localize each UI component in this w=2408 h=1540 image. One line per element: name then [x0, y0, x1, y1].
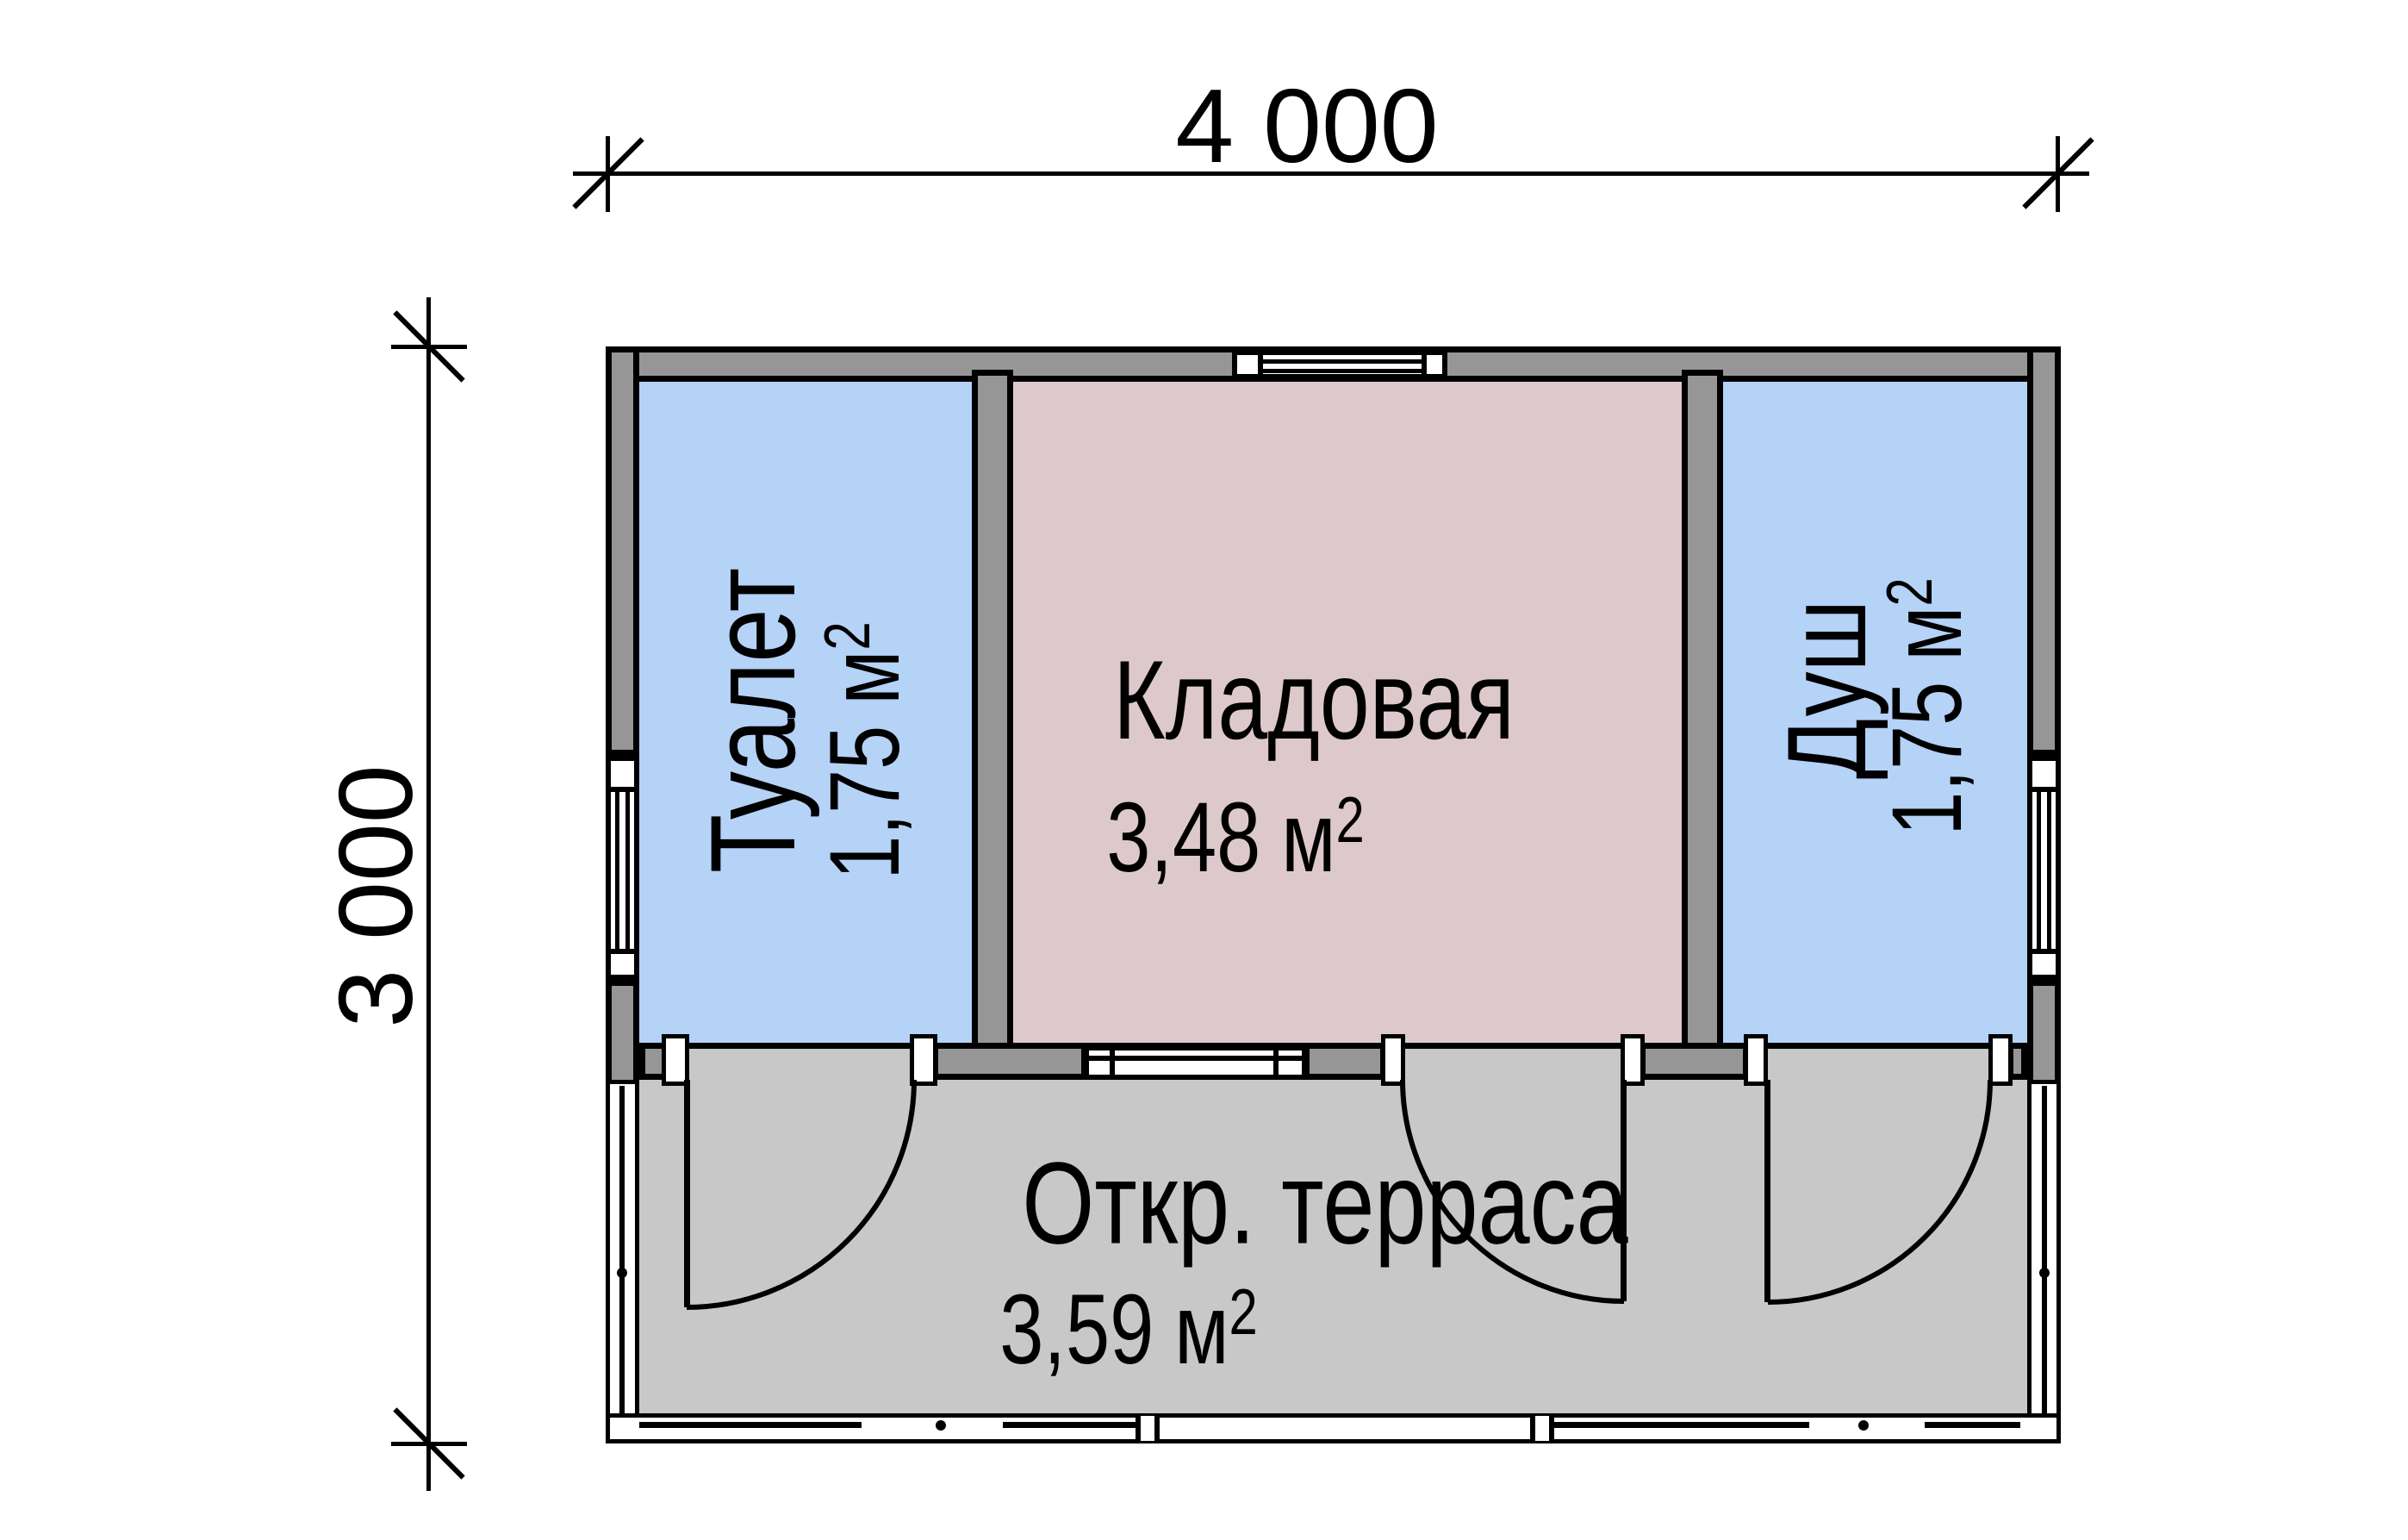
area-label-shower: 1,75м2: [1870, 577, 1984, 835]
area-storage-value: 3,48: [1106, 782, 1260, 893]
railing-south-bar-3: [1554, 1422, 1809, 1428]
window-north-glazing-line-2: [1258, 369, 1427, 373]
railing-west-glazing-line: [619, 1086, 625, 1413]
window-east-glazing-line-1: [2037, 792, 2041, 949]
window-south-divider-left: [1110, 1051, 1115, 1075]
area-shower-unit: м: [1872, 607, 1982, 661]
area-storage-sup: 2: [1335, 783, 1364, 856]
area-shower-sup: 2: [1873, 577, 1945, 606]
window-north: [1232, 350, 1447, 379]
window-east: [2027, 756, 2061, 980]
area-label-storage: 3,48м2: [1106, 781, 1364, 895]
door-toilet-leaf: [684, 1080, 690, 1307]
window-west: [606, 756, 639, 980]
area-toilet-sup: 2: [811, 621, 883, 650]
window-west-glazing-line-1: [615, 792, 619, 949]
area-shower-value: 1,75: [1872, 682, 1982, 836]
railing-south-post-2: [1530, 1416, 1554, 1441]
window-east-glazing-line-2: [2047, 792, 2051, 949]
area-toilet-unit: м: [810, 651, 920, 705]
window-south-divider-right: [1273, 1051, 1279, 1075]
railing-west-dot: [617, 1268, 627, 1278]
door-shower-jamb-right: [1988, 1034, 2013, 1086]
door-shower-jamb-left: [1744, 1034, 1768, 1086]
railing-south-post-1: [1136, 1416, 1160, 1441]
room-label-terrace: Откр. терраса: [1022, 1137, 1627, 1270]
dimension-height-label: 3 000: [315, 764, 436, 1027]
room-label-toilet: Туалет: [683, 568, 823, 873]
floor-plan-canvas: 4 000 3 000: [0, 0, 2408, 1540]
window-west-divider-bottom: [611, 949, 634, 954]
area-toilet-value: 1,75: [810, 726, 920, 880]
railing-south-bar-4: [1925, 1422, 2020, 1428]
area-label-terrace: 3,59м2: [999, 1273, 1257, 1387]
door-toilet-jamb-right: [910, 1034, 937, 1086]
room-label-storage: Кладовая: [1113, 635, 1515, 764]
railing-south-dot-1: [936, 1420, 946, 1431]
railing-south-bar-1: [639, 1422, 862, 1428]
window-north-glazing-line-1: [1258, 359, 1427, 364]
door-storage-jamb-left: [1381, 1034, 1405, 1086]
door-storage-jamb-right: [1621, 1034, 1645, 1086]
railing-south-dot-2: [1858, 1420, 1869, 1431]
railing-south: [606, 1413, 2061, 1443]
railing-south-bar-2: [1003, 1422, 1136, 1428]
area-storage-unit: м: [1281, 782, 1335, 893]
area-terrace-unit: м: [1174, 1275, 1229, 1385]
window-south-glazing-line: [1089, 1056, 1302, 1061]
window-west-glazing-line-2: [625, 792, 630, 949]
dimension-width-label: 4 000: [1175, 65, 1438, 186]
area-terrace-value: 3,59: [999, 1275, 1154, 1385]
door-toilet-jamb-left: [662, 1034, 689, 1086]
area-terrace-sup: 2: [1229, 1275, 1257, 1348]
window-south-storage: [1084, 1045, 1307, 1080]
door-shower-leaf: [1764, 1080, 1770, 1302]
window-east-divider-bottom: [2032, 949, 2056, 954]
area-label-toilet: 1,75м2: [808, 621, 922, 879]
railing-east-dot: [2039, 1268, 2050, 1278]
railing-east-glazing-line: [2042, 1086, 2047, 1413]
